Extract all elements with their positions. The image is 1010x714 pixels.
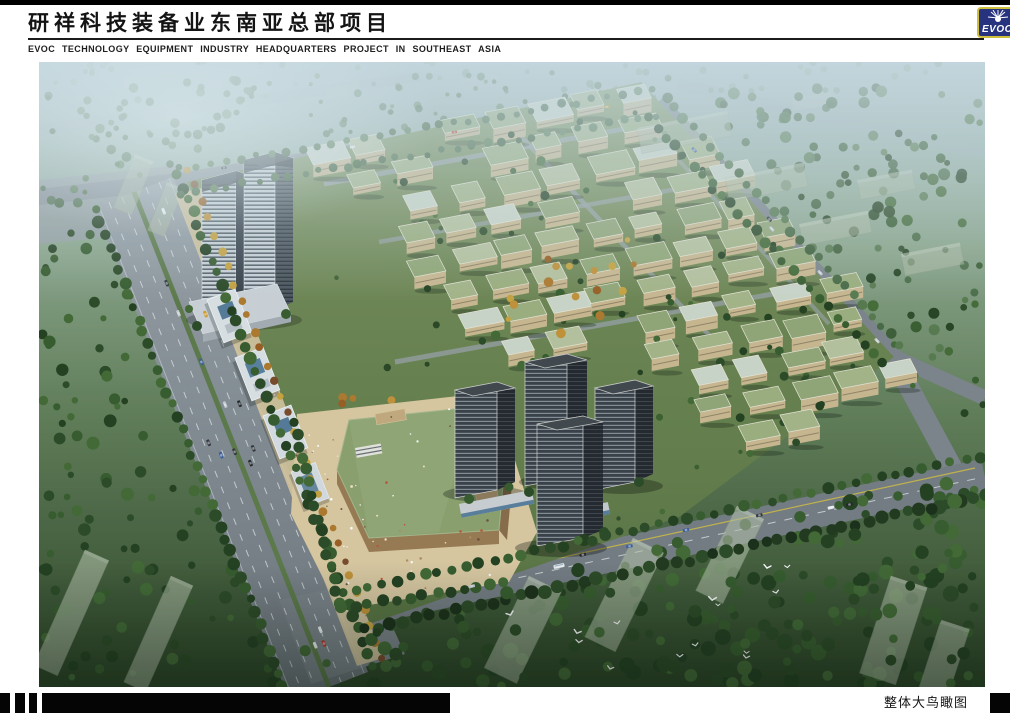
aerial-rendering [39, 62, 985, 687]
caption-text: 整体大鸟瞰图 [450, 693, 990, 713]
top-black-bar [0, 0, 1010, 5]
project-title-en: EVOC TECHNOLOGY EQUIPMENT INDUSTRY HEADQ… [28, 44, 501, 54]
evoc-logo: EVOC [977, 7, 1010, 38]
presentation-board: 研祥科技装备业东南亚总部项目 EVOC TECHNOLOGY EQUIPMENT… [0, 0, 1010, 714]
aerial-rendering-scene [39, 62, 985, 687]
footer-stripe [0, 693, 10, 713]
project-title-zh: 研祥科技装备业东南亚总部项目 [28, 13, 392, 34]
title-divider [28, 38, 984, 40]
footer-stripe [15, 693, 25, 713]
footer-black-bar [42, 693, 450, 713]
logo-text: EVOC [982, 25, 1010, 35]
footer-stripe [29, 693, 37, 713]
logo-starburst-icon [979, 10, 1010, 23]
footer-corner-block [990, 693, 1010, 713]
caption-box: 整体大鸟瞰图 [450, 693, 990, 713]
